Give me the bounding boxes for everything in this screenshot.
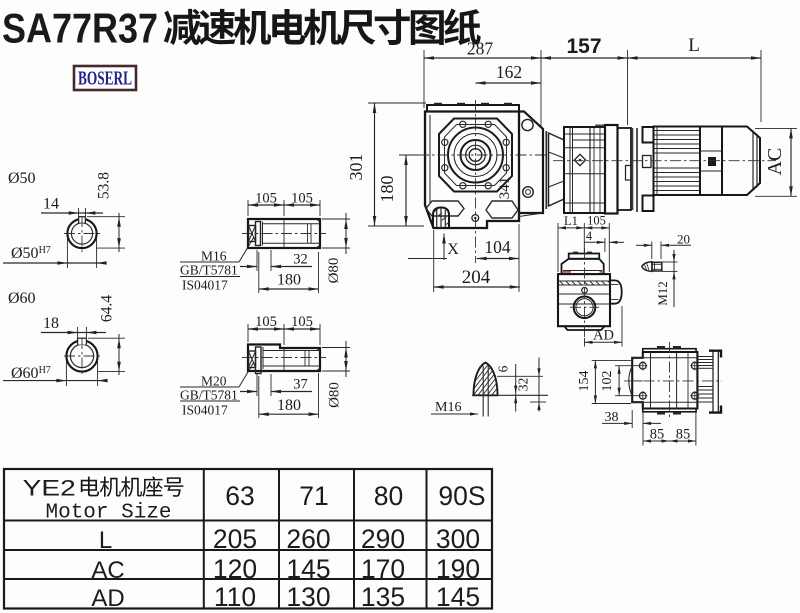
svg-text:180: 180 [277, 272, 301, 289]
svg-text:157: 157 [566, 35, 601, 58]
svg-text:301: 301 [346, 154, 366, 181]
svg-text:130: 130 [286, 582, 330, 612]
svg-text:YE2: YE2 [23, 475, 76, 500]
svg-text:18: 18 [43, 315, 59, 332]
svg-text:80: 80 [374, 481, 403, 511]
svg-text:M12: M12 [655, 281, 670, 306]
svg-text:GB/T5781: GB/T5781 [180, 388, 238, 403]
svg-text:20: 20 [677, 232, 690, 247]
svg-text:L: L [688, 35, 700, 56]
svg-text:85: 85 [676, 427, 691, 443]
svg-text:AD: AD [593, 328, 614, 344]
svg-text:104: 104 [484, 237, 511, 257]
svg-text:205: 205 [213, 524, 257, 554]
svg-text:120: 120 [213, 554, 257, 584]
svg-text:110: 110 [214, 582, 256, 612]
svg-text:135: 135 [361, 582, 405, 612]
svg-text:145: 145 [286, 554, 330, 584]
svg-text:M16: M16 [201, 249, 227, 264]
svg-text:M16: M16 [435, 400, 461, 415]
svg-text:190: 190 [436, 554, 480, 584]
svg-text:GB/T5781: GB/T5781 [180, 263, 238, 278]
svg-text:287: 287 [467, 39, 494, 59]
svg-text:145: 145 [436, 582, 480, 612]
svg-text:204: 204 [462, 267, 491, 288]
svg-text:162: 162 [496, 62, 522, 82]
svg-text:14: 14 [43, 196, 59, 213]
svg-text:63: 63 [225, 481, 254, 511]
svg-text:180: 180 [277, 397, 301, 414]
svg-text:6: 6 [496, 365, 511, 372]
svg-text:85: 85 [650, 427, 665, 443]
svg-text:105: 105 [255, 314, 277, 330]
svg-text:180: 180 [377, 176, 397, 203]
svg-text:L1: L1 [564, 214, 578, 228]
svg-text:105: 105 [291, 191, 313, 207]
svg-text:IS04017: IS04017 [182, 403, 228, 418]
svg-text:32: 32 [293, 252, 308, 268]
svg-text:X: X [447, 241, 459, 258]
svg-text:AC: AC [764, 148, 786, 176]
svg-text:170: 170 [361, 554, 405, 584]
svg-text:105: 105 [587, 214, 606, 228]
svg-text:290: 290 [361, 524, 405, 554]
svg-text:Ø60: Ø60 [8, 290, 36, 307]
svg-text:Motor Size: Motor Size [46, 502, 172, 525]
svg-text:341: 341 [497, 177, 513, 200]
svg-text:Ø80: Ø80 [327, 382, 343, 408]
svg-text:BOSERL: BOSERL [78, 68, 132, 90]
svg-text:260: 260 [286, 524, 330, 554]
svg-text:AD: AD [91, 585, 124, 612]
svg-text:71: 71 [299, 481, 328, 511]
svg-text:64.4: 64.4 [99, 295, 116, 322]
svg-text:32: 32 [516, 378, 531, 392]
svg-text:154: 154 [577, 371, 592, 392]
svg-text:105: 105 [255, 191, 277, 207]
svg-text:37: 37 [293, 377, 308, 393]
svg-text:53.8: 53.8 [96, 172, 113, 199]
svg-text:IS04017: IS04017 [182, 278, 228, 293]
svg-text:Ø80: Ø80 [326, 258, 342, 284]
svg-text:Ø50: Ø50 [8, 170, 36, 187]
svg-text:AC: AC [91, 557, 124, 584]
svg-text:38: 38 [605, 410, 619, 425]
svg-text:L: L [99, 527, 112, 554]
svg-text:SA77R37: SA77R37 [2, 5, 158, 52]
svg-text:300: 300 [436, 524, 480, 554]
svg-text:102: 102 [600, 371, 615, 392]
svg-text:4: 4 [586, 229, 593, 243]
svg-text:M20: M20 [201, 374, 227, 389]
svg-text:90S: 90S [438, 481, 485, 511]
svg-text:105: 105 [291, 314, 313, 330]
